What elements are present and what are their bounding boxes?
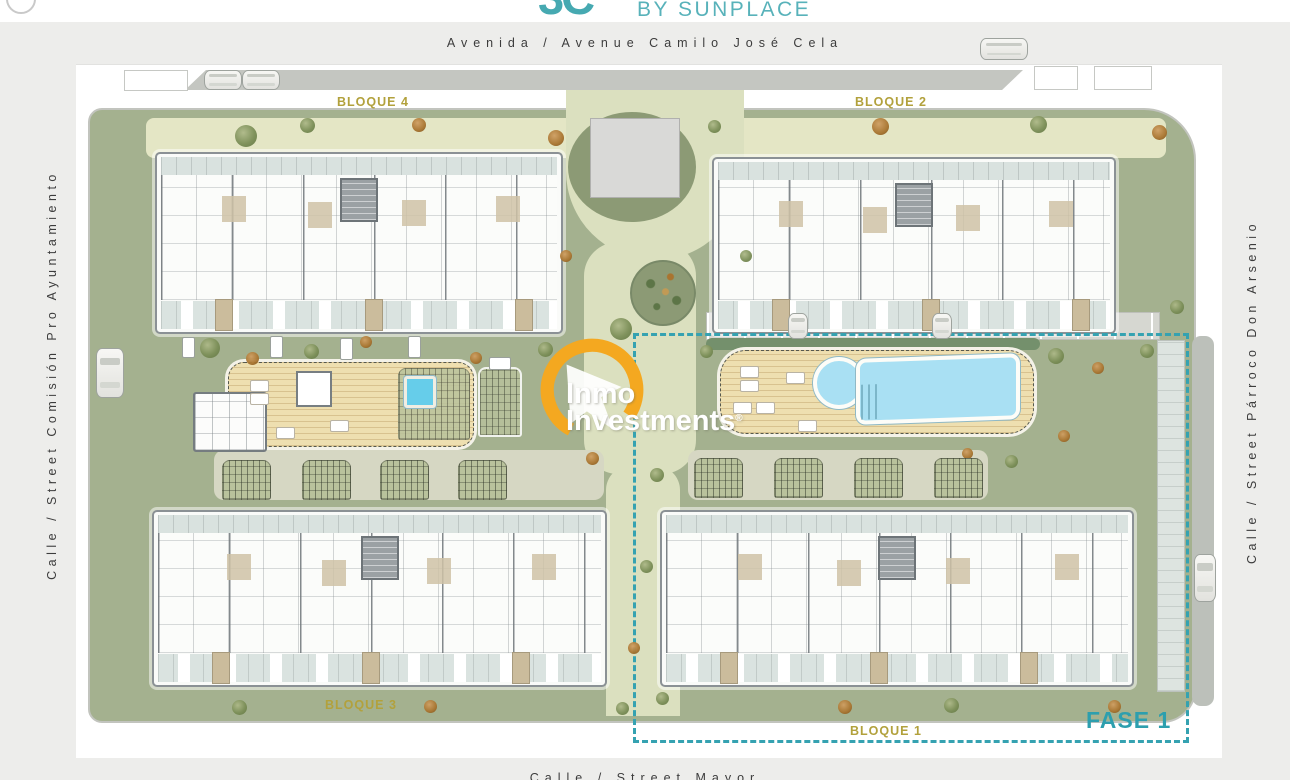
tree-icon bbox=[1030, 116, 1047, 133]
street-label-bottom: Calle / Street Mayor bbox=[0, 771, 1290, 780]
car-icon bbox=[96, 348, 124, 398]
street-bottom-band: Calle / Street Mayor bbox=[0, 758, 1290, 780]
tree-icon bbox=[1170, 300, 1184, 314]
tree-icon bbox=[708, 120, 721, 133]
entry-stair bbox=[362, 652, 380, 684]
street-label-right: Calle / Street Párroco Don Arsenio bbox=[1245, 182, 1259, 602]
tree-icon bbox=[740, 250, 752, 262]
terrace-strip bbox=[161, 157, 557, 175]
garden-circle bbox=[630, 260, 696, 326]
parking-strip-top bbox=[185, 70, 1023, 90]
tree-icon bbox=[656, 692, 669, 705]
street-left-band bbox=[0, 22, 76, 780]
bathroom-patch bbox=[227, 554, 251, 580]
tree-icon bbox=[1048, 348, 1064, 364]
tree-icon bbox=[944, 698, 959, 713]
tree-icon bbox=[1140, 344, 1154, 358]
lounger-icon bbox=[330, 420, 349, 432]
tree-icon bbox=[1058, 430, 1070, 442]
street-label-top: Avenida / Avenue Camilo José Cela bbox=[0, 36, 1290, 50]
tree-icon bbox=[872, 118, 889, 135]
car-icon bbox=[932, 313, 952, 339]
pergola-trellis bbox=[774, 458, 823, 498]
phase-1-label: FASE 1 bbox=[1086, 707, 1171, 734]
terrace-strip bbox=[718, 162, 1110, 180]
parking-bay bbox=[124, 70, 188, 91]
bench-icon bbox=[340, 338, 353, 360]
building-bloque-3 bbox=[152, 510, 607, 687]
registered-mark: ® bbox=[735, 413, 742, 424]
pergola-trellis bbox=[222, 460, 271, 500]
tree-icon bbox=[1108, 700, 1121, 713]
lounger-icon bbox=[276, 427, 295, 439]
tree-icon bbox=[650, 468, 664, 482]
lounger-icon bbox=[798, 420, 817, 432]
watermark-text: Inmo Investments® bbox=[566, 381, 743, 434]
tree-icon bbox=[700, 345, 713, 358]
brand-logo-icon: 3C bbox=[538, 0, 602, 20]
bathroom-patch bbox=[402, 200, 426, 226]
lounger-icon bbox=[250, 380, 269, 392]
bathroom-patch bbox=[222, 196, 246, 222]
tree-icon bbox=[628, 642, 640, 654]
parking-bay bbox=[1034, 66, 1078, 90]
pergola-trellis bbox=[380, 460, 429, 500]
bathroom-patch bbox=[496, 196, 520, 222]
site-plan-canvas: 3C BY SUNPLACE Avenida / Avenue Camilo J… bbox=[0, 0, 1290, 780]
tree-icon bbox=[300, 118, 315, 133]
building-bloque-4 bbox=[155, 152, 563, 334]
kiosk-structure bbox=[296, 371, 332, 407]
entry-stair bbox=[365, 299, 383, 331]
lounger-icon bbox=[786, 372, 805, 384]
watermark-line1: Inmo bbox=[566, 381, 743, 408]
stair-core bbox=[361, 536, 399, 580]
car-icon bbox=[788, 313, 808, 339]
tree-icon bbox=[586, 452, 599, 465]
brand-byline: BY SUNPLACE bbox=[637, 0, 811, 22]
car-icon bbox=[242, 70, 280, 90]
lounger-icon bbox=[740, 380, 759, 392]
building-bloque-2 bbox=[712, 157, 1116, 334]
entry-stair bbox=[515, 299, 533, 331]
tree-icon bbox=[470, 352, 482, 364]
lounger-icon bbox=[756, 402, 775, 414]
tree-icon bbox=[1092, 362, 1104, 374]
car-icon bbox=[980, 38, 1028, 60]
stair-core bbox=[340, 178, 378, 222]
car-icon bbox=[204, 70, 242, 90]
tree-icon bbox=[560, 250, 572, 262]
bathroom-patch bbox=[1049, 201, 1073, 227]
tree-icon bbox=[200, 338, 220, 358]
tree-icon bbox=[1005, 455, 1018, 468]
watermark-line2: Investments® bbox=[566, 408, 743, 435]
pergola-trellis bbox=[854, 458, 903, 498]
bathroom-patch bbox=[322, 560, 346, 586]
bench-icon bbox=[489, 357, 511, 370]
block-label-bloque-4: BLOQUE 4 bbox=[337, 95, 409, 109]
lounger-icon bbox=[250, 393, 269, 405]
tree-icon bbox=[548, 130, 564, 146]
bathroom-patch bbox=[427, 558, 451, 584]
tree-icon bbox=[640, 560, 653, 573]
tree-icon bbox=[235, 125, 257, 147]
pergola-east-annex bbox=[478, 367, 522, 437]
spa-pool bbox=[404, 376, 436, 408]
bathroom-patch bbox=[863, 207, 887, 233]
tree-icon bbox=[538, 342, 553, 357]
tree-icon bbox=[1152, 125, 1167, 140]
entry-stair bbox=[215, 299, 233, 331]
tree-icon bbox=[610, 318, 632, 340]
entry-stair bbox=[512, 652, 530, 684]
street-label-left: Calle / Street Comisión Pro Ayuntamiento bbox=[45, 145, 59, 605]
tree-icon bbox=[838, 700, 852, 714]
entry-stair bbox=[1072, 299, 1090, 331]
entry-stair bbox=[212, 652, 230, 684]
tree-icon bbox=[304, 344, 319, 359]
terrace-strip bbox=[158, 515, 601, 533]
utility-pad bbox=[590, 118, 680, 198]
bathroom-patch bbox=[779, 201, 803, 227]
tree-icon bbox=[616, 702, 629, 715]
pergola-trellis bbox=[458, 460, 507, 500]
car-icon bbox=[1194, 554, 1216, 602]
bathroom-patch bbox=[532, 554, 556, 580]
block-label-bloque-3: BLOQUE 3 bbox=[325, 698, 397, 712]
tree-icon bbox=[232, 700, 247, 715]
tree-icon bbox=[246, 352, 259, 365]
bench-icon bbox=[270, 336, 283, 358]
partial-logo-ring-icon bbox=[6, 0, 36, 14]
parking-bay bbox=[1094, 66, 1152, 90]
lounger-icon bbox=[733, 402, 752, 414]
block-label-bloque-1: BLOQUE 1 bbox=[850, 724, 922, 738]
tree-icon bbox=[412, 118, 426, 132]
pergola-trellis bbox=[934, 458, 983, 498]
lounger-icon bbox=[740, 366, 759, 378]
tree-icon bbox=[360, 336, 372, 348]
pergola-trellis bbox=[302, 460, 351, 500]
pergola-trellis bbox=[694, 458, 743, 498]
stair-core bbox=[895, 183, 933, 227]
bathroom-patch bbox=[956, 205, 980, 231]
block-label-bloque-2: BLOQUE 2 bbox=[855, 95, 927, 109]
bathroom-patch bbox=[308, 202, 332, 228]
bench-icon bbox=[408, 336, 421, 358]
brand-logo-glyph: 3C bbox=[538, 0, 592, 20]
parking-strip-right bbox=[1192, 336, 1214, 706]
bench-icon bbox=[182, 337, 195, 358]
tree-icon bbox=[424, 700, 437, 713]
